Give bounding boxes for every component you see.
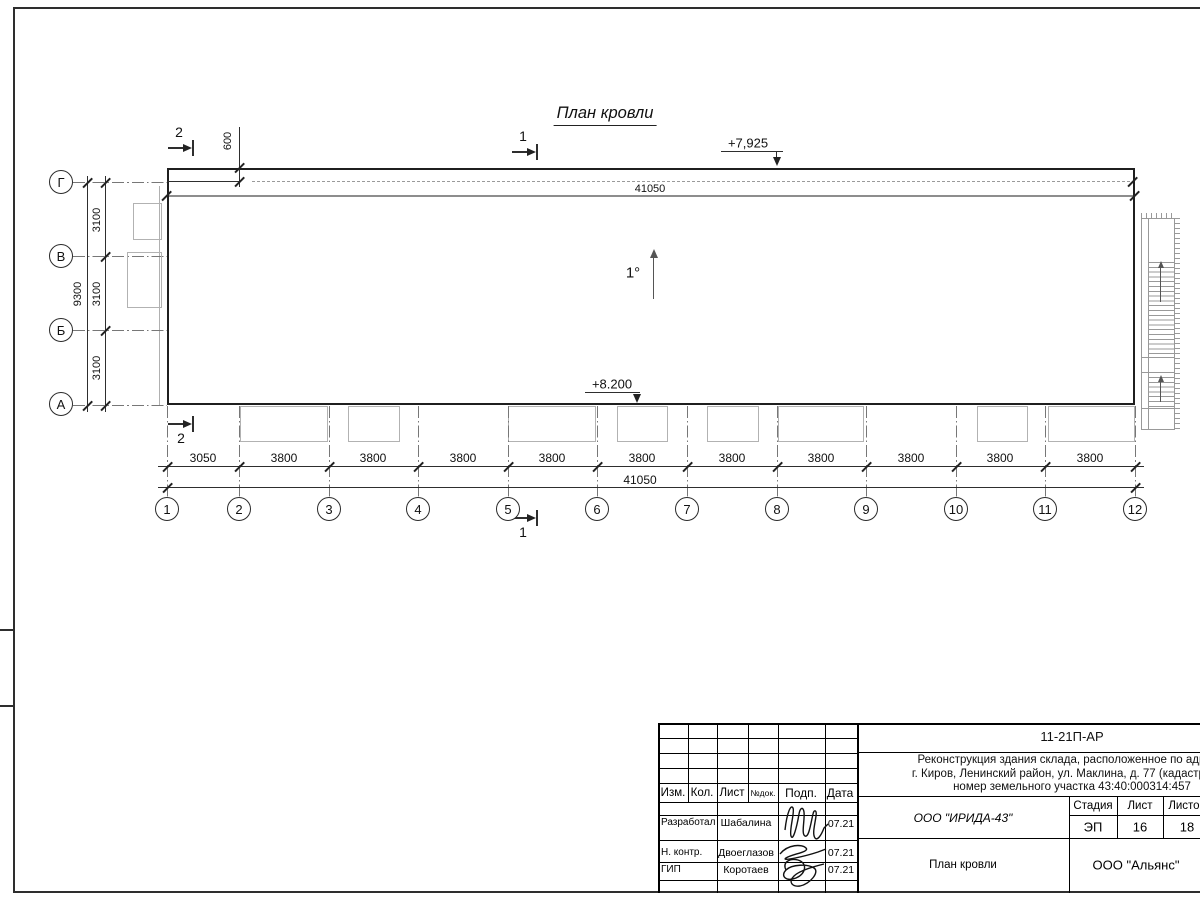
section-1-bottom-bar [536,510,538,526]
grid-bubble-label: 5 [504,502,511,517]
grid-col-line [956,406,957,497]
tb-hline [857,796,1200,797]
grid-bubble-label: 10 [949,502,963,517]
grid-bubble-label: 7 [683,502,690,517]
dim-bottom-segment-text: 3050 [190,451,217,465]
canopy-bottom-7 [977,406,1028,442]
tb-doc-number: 11-21П-АР [1040,729,1103,744]
dim-top-total-text: 41050 [635,183,666,195]
elevation-top-leader [721,151,783,152]
grid-bubble-label: 3 [325,502,332,517]
grid-bubble-row-g: Г [49,170,73,194]
frame-left [13,7,15,893]
tb-doc-number-cell: 11-21П-АР [857,728,1200,746]
grid-bubble-label: А [57,397,66,412]
grid-col-line [167,406,168,497]
dim-bottom-segment-text: 3800 [898,451,925,465]
grid-bubble-col-12: 12 [1123,497,1147,521]
dim-left-total-line [87,176,88,412]
stair-arrow-shaft-upper [1160,268,1161,302]
dim-bottom-total-line [158,487,1144,488]
dim-bottom-segment-text: 3800 [450,451,477,465]
elevation-top-text: +7,925 [728,136,768,151]
tb-sheets-value: 18 [1180,820,1194,835]
stair-landing-line-2 [1141,372,1175,373]
tb-sheet-label: Лист [1128,800,1153,812]
grid-col-line [329,406,330,497]
grid-col-line [418,406,419,497]
dim-overhang-text: 600 [222,132,234,150]
tb-sheet-title: План кровли [929,859,997,871]
signature-developer [779,800,829,844]
grid-bubble-label: В [57,249,66,264]
tb-project-line-1: Реконструкция здания склада, расположенн… [857,754,1200,768]
overhang-solid-segment [167,181,240,182]
grid-bubble-label: 8 [773,502,780,517]
tb-date-developer: 07.21 [828,818,854,830]
tb-hline [658,738,857,739]
binding-mark-bottom [0,705,13,707]
tb-role-developer: Разработал [661,817,715,828]
grid-bubble-col-2: 2 [227,497,251,521]
grid-col-line [866,406,867,497]
grid-bubble-label: 9 [862,502,869,517]
tb-date-gip: 07.21 [828,864,854,876]
dim-bottom-segment-text: 3800 [808,451,835,465]
grid-bubble-label: 11 [1038,502,1052,517]
elevation-bottom-arrow [633,394,641,403]
dim-left-segments-line [105,176,106,412]
canopy-bottom-8 [1048,406,1135,442]
dim-bottom-segments-line [158,466,1144,467]
grid-bubble-col-9: 9 [854,497,878,521]
grid-bubble-col-3: 3 [317,497,341,521]
elevation-bottom-leader [585,392,640,393]
section-2-top-bar [192,140,194,156]
dim-bottom-segment-text: 3800 [1077,451,1104,465]
tb-col-data: Дата [827,786,854,800]
canopy-bottom-2 [348,406,400,442]
canopy-bottom-5 [707,406,759,442]
tb-hline [658,753,857,754]
tb-name-gip: Коротаев [723,864,768,876]
dim-bottom-segment-text: 3800 [987,451,1014,465]
tb-contractor-org: ООО "Альянс" [1093,858,1180,873]
grid-col-line [239,406,240,497]
grid-col-line [1045,406,1046,497]
frame-bottom [13,891,1200,893]
section-1-bottom-arrow [527,514,536,522]
tb-col-podp: Подп. [785,786,817,800]
tb-sheet-value: 16 [1133,820,1147,835]
grid-bubble-label: 4 [414,502,421,517]
dim-bottom-segment-text: 3800 [539,451,566,465]
section-1-top-bar [536,144,538,160]
canopy-bottom-6 [778,406,864,442]
binding-mark-top [0,629,13,631]
grid-bubble-col-11: 11 [1033,497,1057,521]
grid-bubble-label: 12 [1128,502,1142,517]
elevation-bottom-text: +8.200 [592,377,632,392]
tb-col-list: Лист [720,787,745,799]
tb-project-description: Реконструкция здания склада, расположенн… [857,754,1200,795]
section-2-bottom-bar [192,416,194,432]
section-1-top-arrow [527,148,536,156]
slope-arrow-head [650,249,658,258]
section-2-top-arrow [183,144,192,152]
dim-bottom-segment-text: 3800 [360,451,387,465]
stair-arrow-upper [1158,261,1164,268]
tb-stage-value: ЭП [1084,820,1103,835]
stair-treads-upper [1149,262,1175,358]
dim-left-segment-text: 3100 [91,282,103,306]
tb-col-izm: Изм. [661,787,686,799]
tb-project-line-2: г. Киров, Ленинский район, ул. Маклина, … [857,768,1200,782]
grid-bubble-row-b: Б [49,318,73,342]
stair-bottom-line [1141,408,1175,409]
canopy-bottom-4 [617,406,668,442]
canopy-left-2 [127,252,162,308]
tb-vline [717,723,718,893]
tb-project-line-3: номер земельного участка 43:40:000314:45… [857,781,1200,795]
tb-hline [658,768,857,769]
roof-edge-line [169,195,1133,197]
tb-name-developer: Шабалина [721,817,772,829]
stair-arrow-lower [1158,375,1164,382]
dim-left-segment-text: 3100 [91,356,103,380]
grid-bubble-col-7: 7 [675,497,699,521]
roof-outline [167,168,1135,405]
grid-bubble-label: 1 [163,502,170,517]
grid-bubble-col-10: 10 [944,497,968,521]
dim-bottom-segment-text: 3800 [271,451,298,465]
elevation-top-arrow [773,157,781,166]
section-2-top-label: 2 [175,124,183,140]
tb-role-ncontrol: Н. контр. [661,847,702,858]
grid-bubble-label: 2 [235,502,242,517]
grid-col-line [1135,406,1136,497]
dim-left-total-text: 9300 [72,282,84,306]
grid-col-line [687,406,688,497]
grid-bubble-col-6: 6 [585,497,609,521]
drawing-sheet: План кровли 600 41050 +7,925 +8.200 1° 2… [0,0,1200,900]
slope-arrow-shaft [653,256,654,299]
tb-col-ndok: №док. [751,788,776,798]
tb-col-kol: Кол. [691,787,714,799]
dim-left-segment-text: 3100 [91,208,103,232]
dim-overhang-line [239,127,240,187]
grid-bubble-col-5: 5 [496,497,520,521]
titleblock-border-top [658,723,1200,725]
grid-bubble-label: Г [57,175,64,190]
stair-arrow-shaft-lower [1160,382,1161,402]
tb-stage-label: Стадия [1073,800,1112,812]
hidden-wall-dashed-line [252,181,1130,182]
grid-bubble-col-8: 8 [765,497,789,521]
slope-text: 1° [626,265,640,282]
grid-bubble-col-1: 1 [155,497,179,521]
signature-gip [772,840,830,890]
grid-bubble-label: Б [57,323,66,338]
grid-bubble-col-4: 4 [406,497,430,521]
grid-bubble-label: 6 [593,502,600,517]
titleblock-border-left [658,723,660,893]
tb-sheets-label: Листов [1168,800,1200,812]
grid-col-line [508,406,509,497]
section-1-bottom-label: 1 [519,524,527,540]
tb-vline [1117,796,1118,838]
tb-role-gip: ГИП [661,864,681,875]
tb-vline [688,723,689,802]
tb-name-ncontrol: Двоеглазов [718,847,774,859]
tb-date-ncontrol: 07.21 [828,847,854,859]
canopy-bottom-3 [508,406,596,442]
section-2-bottom-arrow [183,420,192,428]
tb-vline [748,723,749,802]
tb-vline [1163,796,1164,838]
tb-vline [857,723,859,893]
plan-title: План кровли [554,104,657,126]
tb-hline [1069,815,1200,816]
stair-railing-hatch-right [1175,218,1180,430]
canopy-bottom-1 [240,406,328,442]
section-1-top-label: 1 [519,128,527,144]
frame-top [13,7,1200,9]
dim-bottom-segment-text: 3800 [719,451,746,465]
canopy-left-1 [133,203,162,240]
tb-hline [857,838,1200,839]
dim-bottom-segment-text: 3800 [629,451,656,465]
grid-bubble-row-v: В [49,244,73,268]
section-2-bottom-label: 2 [177,430,185,446]
tb-vline [1069,796,1070,893]
stair-landing-line-1 [1141,357,1175,358]
dim-bottom-total-text: 41050 [623,473,656,487]
grid-col-line [597,406,598,497]
grid-bubble-row-a: А [49,392,73,416]
tb-designer-org: ООО "ИРИДА-43" [914,811,1013,825]
tb-hline [658,783,857,784]
stair-railing-hatch-top [1141,213,1175,218]
grid-col-line [777,406,778,497]
